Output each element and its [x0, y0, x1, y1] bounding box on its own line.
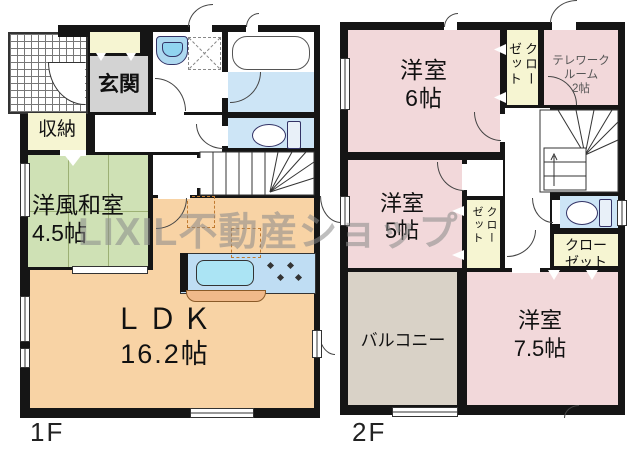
- window: [20, 348, 30, 368]
- west5-name: 洋室: [352, 190, 452, 217]
- label-closet-hall: クローゼット: [562, 237, 610, 271]
- ldk-size: 16.2帖: [90, 338, 240, 370]
- doorway: [552, 200, 560, 224]
- doorway: [512, 267, 540, 273]
- floor-plan: 玄関 収納 洋風和室 4.5帖 ＬＤＫ 16.2帖 1F: [0, 0, 640, 449]
- west75-name: 洋室: [482, 307, 598, 335]
- floor2-label: 2F: [352, 417, 386, 448]
- toilet-tank-icon-1f: [287, 121, 301, 149]
- label-genkan: 玄関: [88, 72, 150, 97]
- west6-size: 6帖: [374, 84, 474, 112]
- kitchen-sink-icon: [196, 260, 254, 286]
- shoe-cabinet: [90, 32, 140, 53]
- window: [20, 163, 30, 217]
- f1-wall-porch-top: [58, 25, 88, 37]
- refrigerator-space-dashed: [187, 196, 215, 228]
- kitchen-counter-lip: [186, 290, 266, 302]
- window-arc: [320, 196, 341, 223]
- washitsu-name: 洋風和室: [32, 192, 150, 220]
- stair-landing-1f: [153, 155, 197, 195]
- toilet-icon-1f: [252, 124, 286, 147]
- label-west5: 洋室 5帖: [352, 190, 452, 244]
- washer-pan-dashed: [188, 37, 221, 70]
- stairs-icon-1f: [200, 152, 314, 195]
- window: [190, 408, 254, 418]
- doorway: [222, 72, 228, 98]
- hall-2f-west5: [467, 160, 503, 196]
- kitchen-counter-cap: [180, 253, 188, 292]
- window: [340, 196, 350, 226]
- cupboard-space-dashed: [231, 228, 261, 258]
- door-arc: [188, 4, 213, 27]
- sliding-door-washitsu: [72, 266, 148, 274]
- toilet-icon-2f: [566, 201, 598, 225]
- doorway: [552, 22, 576, 30]
- door-arc: [246, 13, 259, 27]
- toilet-tank-icon-2f: [599, 199, 612, 227]
- label-west6: 洋室 6帖: [374, 56, 474, 112]
- label-west75: 洋室 7.5帖: [482, 307, 598, 363]
- west6-name: 洋室: [374, 56, 474, 84]
- label-closet-west5: クローゼット: [469, 206, 498, 252]
- label-washitsu: 洋風和室 4.5帖: [32, 192, 150, 247]
- bathtub-icon: [232, 36, 310, 70]
- telework-line1: テレワーク: [544, 54, 618, 68]
- label-telework: テレワーク ルーム 2帖: [544, 54, 618, 96]
- stairs-icon-2f: [540, 110, 618, 192]
- floor1-label: 1F: [30, 417, 64, 448]
- window: [617, 200, 627, 226]
- window: [340, 58, 350, 110]
- doorway: [196, 158, 201, 188]
- label-ldk: ＬＤＫ 16.2帖: [90, 303, 240, 370]
- washitsu-size: 4.5帖: [32, 220, 150, 248]
- washbasin-bowl: [162, 42, 183, 57]
- telework-line2: ルーム: [544, 68, 618, 82]
- door-arc: [550, 0, 577, 23]
- balcony-rail: [392, 407, 458, 417]
- label-balcony: バルコニー: [350, 331, 456, 351]
- door-arc: [444, 13, 458, 27]
- ldk-name: ＬＤＫ: [90, 303, 240, 338]
- washbasin-icon: [156, 36, 188, 65]
- label-closet-top: クローゼット: [507, 42, 538, 92]
- west75-size: 7.5帖: [482, 335, 598, 363]
- telework-size: 2帖: [544, 82, 618, 96]
- west5-size: 5帖: [352, 217, 452, 244]
- label-storage: 収納: [26, 119, 88, 142]
- window: [312, 330, 322, 358]
- window: [20, 296, 30, 342]
